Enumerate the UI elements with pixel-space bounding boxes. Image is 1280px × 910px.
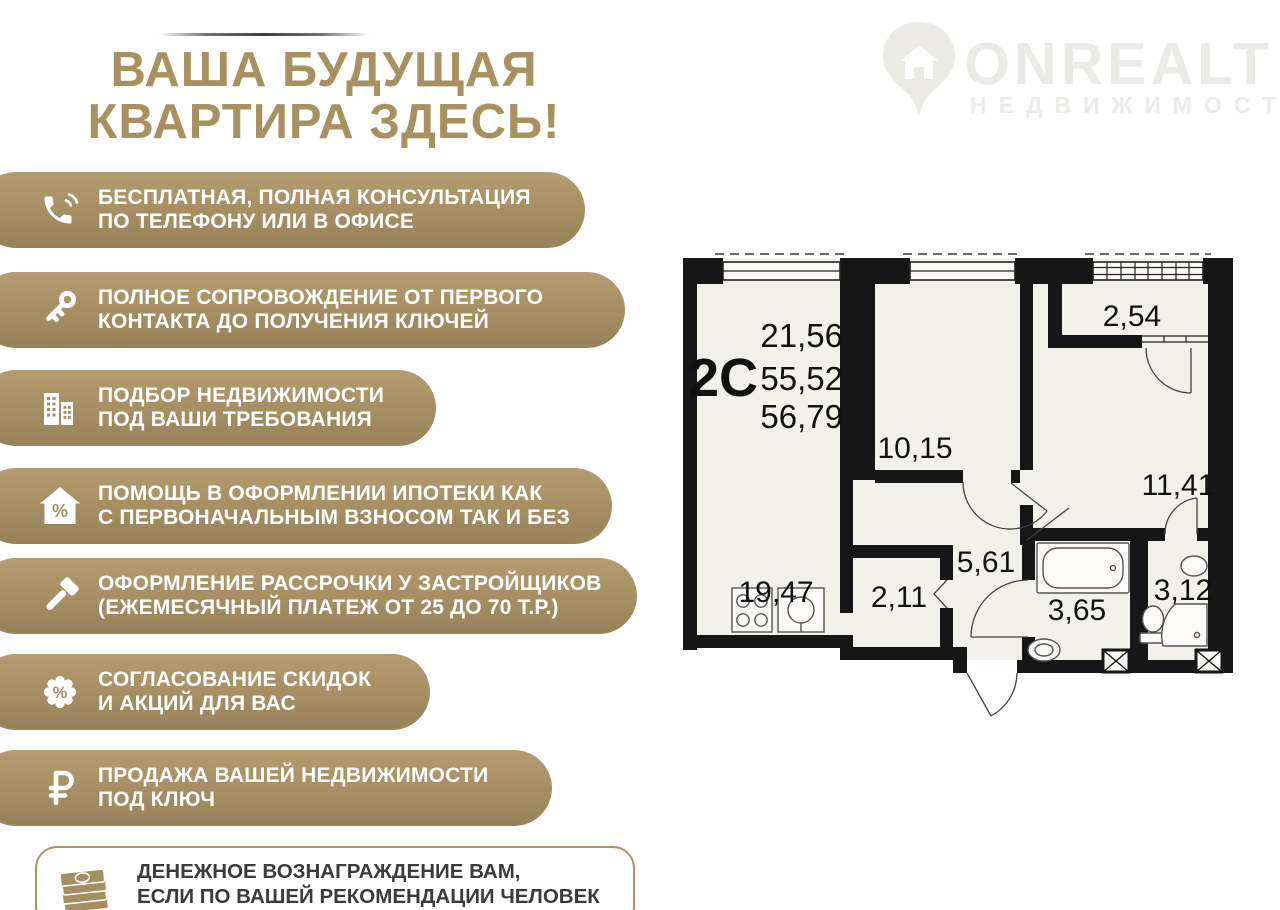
room-label-kitchen: 19,47	[738, 576, 813, 609]
room-label-bedroom2: 11,41	[1142, 469, 1215, 502]
benefit-mortgage: % ПОМОЩЬ В ОФОРМЛЕНИИ ИПОТЕКИ КАК С ПЕРВ…	[0, 468, 612, 544]
benefit-installment: ОФОРМЛЕНИЕ РАССРОЧКИ У ЗАСТРОЙЩИКОВ (ЕЖЕ…	[0, 558, 637, 634]
ruble-icon	[34, 764, 86, 812]
page-title: ВАША БУДУЩАЯ КВАРТИРА ЗДЕСЬ!	[0, 44, 648, 148]
benefit-text-line: И АКЦИЙ ДЛЯ ВАС	[98, 692, 371, 717]
percent-badge-icon: %	[34, 668, 86, 716]
plan-area-full: 56,79	[760, 398, 843, 435]
washbasin-icon	[1028, 639, 1060, 661]
benefit-text-line: ПОД КЛЮЧ	[98, 788, 488, 813]
benefit-text-line: ПОДБОР НЕДВИЖИМОСТИ	[98, 384, 384, 409]
benefit-discounts: % СОГЛАСОВАНИЕ СКИДОК И АКЦИЙ ДЛЯ ВАС	[0, 654, 430, 730]
logo-wordmark: ONREALT	[964, 30, 1273, 98]
svg-text:%: %	[53, 684, 68, 702]
plan-area-living: 55,52	[760, 360, 843, 397]
benefit-support: ПОЛНОЕ СОПРОВОЖДЕНИЕ ОТ ПЕРВОГО КОНТАКТА…	[0, 272, 625, 348]
benefit-sale: ПРОДАЖА ВАШЕЙ НЕДВИЖИМОСТИ ПОД КЛЮЧ	[0, 750, 552, 826]
svg-text:%: %	[52, 501, 68, 521]
room-label-wardrobe: 2,11	[871, 581, 927, 614]
benefit-text-line: ОФОРМЛЕНИЕ РАССРОЧКИ У ЗАСТРОЙЩИКОВ	[98, 572, 602, 597]
plan-type-label: 2С	[689, 348, 758, 408]
toilet-sink-icon	[1181, 556, 1207, 576]
benefit-text-line: ПОД ВАШИ ТРЕБОВАНИЯ	[98, 408, 384, 433]
buildings-icon	[34, 384, 86, 432]
money-stack-icon	[53, 860, 115, 910]
key-icon	[34, 286, 86, 334]
flyer-page: ONREALT НЕДВИЖИМОСТЬ ВАША БУДУЩАЯ КВАРТИ…	[0, 0, 1280, 910]
benefit-text-line: ПРОДАЖА ВАШЕЙ НЕДВИЖИМОСТИ	[98, 764, 488, 789]
toilet-icon	[1143, 606, 1164, 632]
title-line-2: КВАРТИРА ЗДЕСЬ!	[0, 96, 648, 148]
benefit-text-line: БЕСПЛАТНАЯ, ПОЛНАЯ КОНСУЛЬТАЦИЯ	[98, 186, 531, 211]
benefit-text-line: С ПЕРВОНАЧАЛЬНЫМ ВЗНОСОМ ТАК И БЕЗ	[98, 506, 570, 531]
room-label-toilet: 3,12	[1154, 574, 1212, 607]
logo-pin-icon	[880, 20, 958, 120]
benefit-text-line: СОГЛАСОВАНИЕ СКИДОК	[98, 668, 371, 693]
reward-note-box: ДЕНЕЖНОЕ ВОЗНАГРАЖДЕНИЕ ВАМ, ЕСЛИ ПО ВАШ…	[35, 846, 635, 910]
benefit-selection: ПОДБОР НЕДВИЖИМОСТИ ПОД ВАШИ ТРЕБОВАНИЯ	[0, 370, 436, 446]
benefit-text-line: ПОМОЩЬ В ОФОРМЛЕНИИ ИПОТЕКИ КАК	[98, 482, 570, 507]
title-line-1: ВАША БУДУЩАЯ	[0, 44, 648, 96]
benefit-text-line: КОНТАКТА ДО ПОЛУЧЕНИЯ КЛЮЧЕЙ	[98, 310, 543, 335]
phone-icon	[34, 186, 86, 234]
reward-text-line: ЕСЛИ ПО ВАШЕЙ РЕКОМЕНДАЦИИ ЧЕЛОВЕК	[137, 884, 633, 909]
room-label-bedroom1: 10,15	[877, 432, 952, 465]
room-label-hall: 5,61	[957, 546, 1015, 579]
logo-subtitle: НЕДВИЖИМОСТЬ	[970, 92, 1280, 119]
benefit-text-line: ПОЛНОЕ СОПРОВОЖДЕНИЕ ОТ ПЕРВОГО	[98, 286, 543, 311]
benefit-text-line: (ЕЖЕМЕСЯЧНЫЙ ПЛАТЕЖ ОТ 25 ДО 70 Т.Р.)	[98, 596, 602, 621]
benefit-text-line: ПО ТЕЛЕФОНУ ИЛИ В ОФИСЕ	[98, 210, 531, 235]
house-percent-icon: %	[34, 482, 86, 530]
floor-plan: 2С 21,56 55,52 56,79 19,47 10,15 2,54 11…	[675, 250, 1255, 725]
plan-area-total: 21,56	[760, 317, 843, 354]
room-label-bathroom: 3,65	[1048, 594, 1106, 627]
room-label-balcony: 2,54	[1103, 300, 1161, 333]
title-divider	[158, 33, 370, 36]
benefit-consultation: БЕСПЛАТНАЯ, ПОЛНАЯ КОНСУЛЬТАЦИЯ ПО ТЕЛЕФ…	[0, 172, 585, 248]
hammer-icon	[34, 572, 86, 620]
reward-text-line: ДЕНЕЖНОЕ ВОЗНАГРАЖДЕНИЕ ВАМ,	[137, 859, 633, 884]
